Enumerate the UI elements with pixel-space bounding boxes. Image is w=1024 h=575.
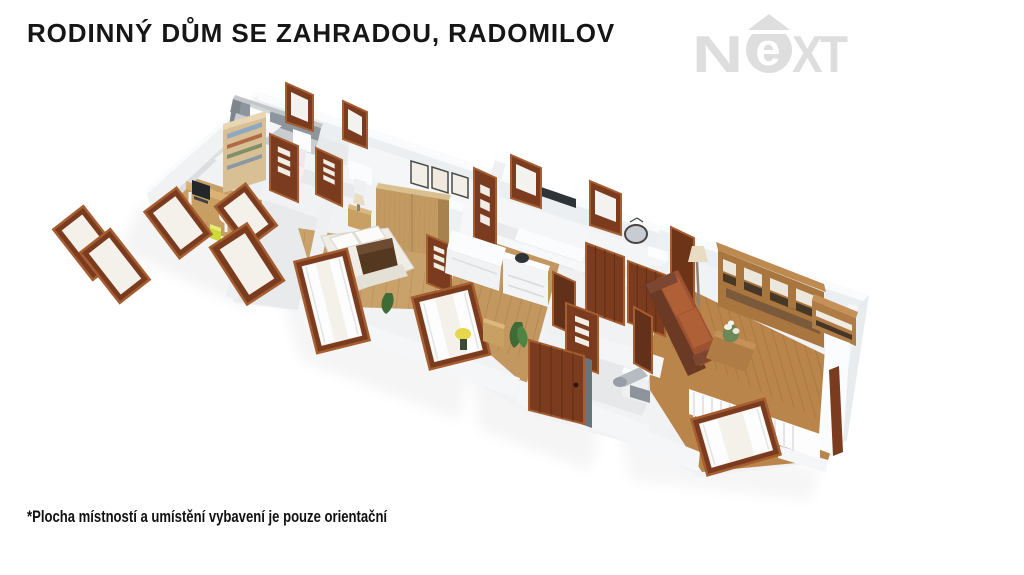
svg-text:N: N [692,26,743,84]
svg-text:XT: XT [792,26,848,83]
svg-text:e: e [755,24,780,75]
